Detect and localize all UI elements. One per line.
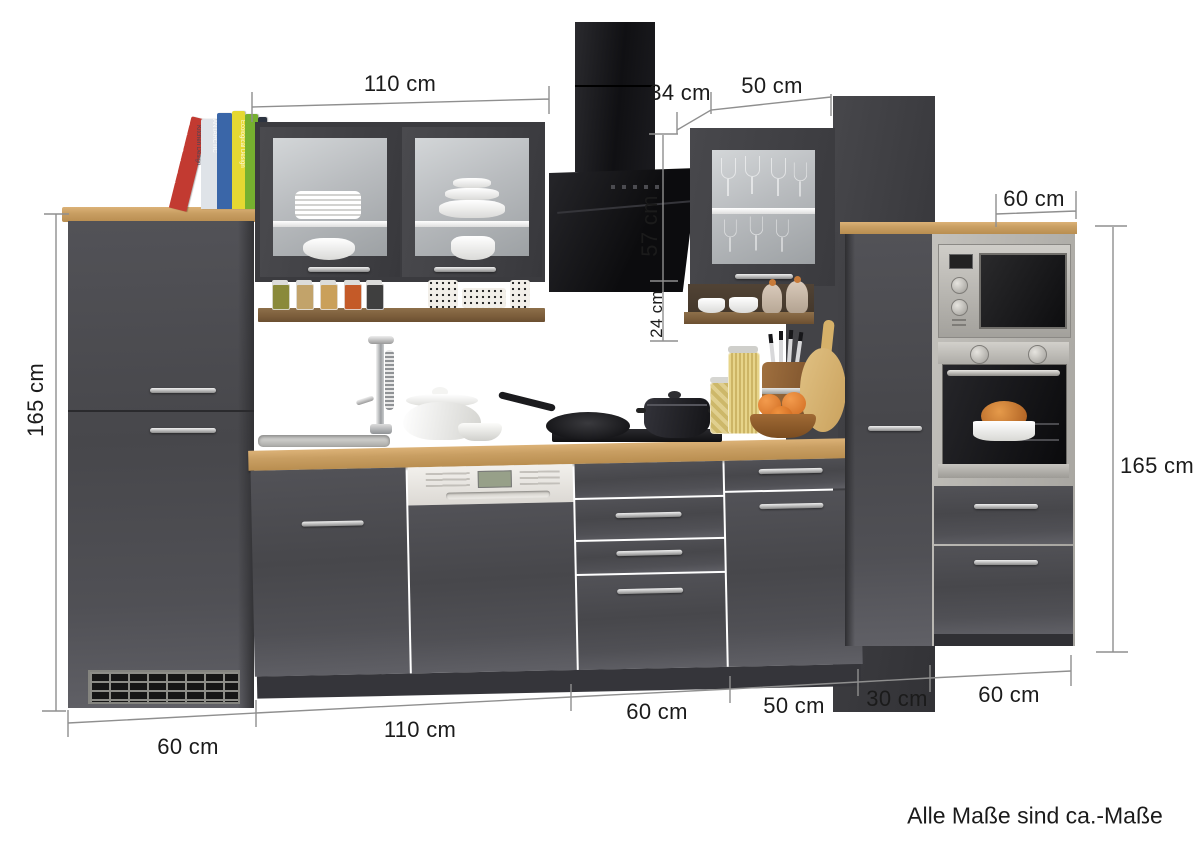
door-handle [759, 503, 823, 509]
tall-cabinet-30 [845, 234, 932, 646]
drawer-handle [616, 512, 682, 518]
faucet-spring-coil [385, 350, 394, 410]
top-drawer [724, 458, 859, 491]
drawer-handle [616, 550, 682, 556]
dishwasher-buttons-right [520, 470, 560, 485]
bowl-stack-bottom [439, 200, 505, 218]
dim-hood-height: 57 cm [637, 195, 663, 256]
tall-cabinet-lower-handle [150, 428, 216, 433]
shelf2-board [684, 312, 814, 324]
tower-plinth [934, 634, 1073, 646]
tower-drawer-2 [934, 546, 1073, 634]
tall-cabinet-left-top-board [62, 207, 258, 222]
dim-bottom-hob-unit: 60 cm [626, 699, 687, 725]
tall-cabinet-upper-handle [150, 388, 216, 393]
tall-30-side-shade [845, 234, 855, 646]
drawer-3 [577, 573, 727, 670]
sink-base-cabinet [251, 468, 410, 677]
hood-chimney [575, 22, 655, 172]
dim-bottom-cabinet-50: 50 cm [763, 693, 824, 719]
microwave-dial [951, 299, 968, 316]
dim-bottom-sink-run: 110 cm [384, 717, 456, 743]
dim-tall-unit-width: 60 cm [1003, 186, 1064, 212]
oven-knob [1028, 345, 1047, 364]
spice-jar [320, 284, 338, 310]
drawer-1 [575, 497, 724, 540]
book-title: ANTARCTIC [211, 119, 217, 134]
wine-glass [723, 219, 737, 258]
pot-handle-left [636, 408, 646, 413]
faucet [350, 336, 410, 436]
jar-lid-knob [769, 279, 776, 286]
tall-cabinet-left [68, 221, 254, 708]
chimney-seam [575, 85, 655, 87]
oven-bottom-trim [938, 464, 1069, 478]
book-title: Kitchen Design [195, 125, 201, 141]
dim-height-right: 165 cm [1120, 453, 1194, 479]
cabinet-shelf [712, 208, 815, 214]
jar-lid-knob [794, 276, 801, 283]
bowl-stack-top [453, 178, 491, 188]
microwave [938, 244, 1071, 338]
faucet-column [376, 342, 384, 434]
dishwasher-handle-groove [446, 491, 550, 500]
cabinet-shelf [273, 221, 387, 227]
hood-control-dots [611, 185, 659, 189]
oven [938, 342, 1069, 478]
white-bowl [729, 297, 758, 313]
wine-glass [749, 216, 763, 257]
hood-body [549, 168, 701, 292]
microwave-buttons [952, 319, 966, 329]
wall-cabinet-door-right [402, 127, 542, 277]
microwave-display [949, 254, 973, 269]
glass-cabinet-panel [712, 150, 815, 264]
book-title: Garden & Outdoor Design [180, 121, 190, 140]
wall-cabinet-glass [255, 122, 545, 282]
drawer-handle [617, 588, 683, 594]
faucet-lever [356, 395, 375, 405]
pot-lid-rim [647, 404, 707, 406]
oven-control-panel [938, 342, 1069, 364]
dishwasher-control-panel [408, 464, 574, 505]
faucet-base [370, 424, 392, 434]
small-white-bowl [458, 423, 502, 441]
sink-cabinet-handle [302, 520, 364, 526]
drawer-handle [974, 504, 1038, 509]
door-glass-panel [415, 138, 529, 256]
tall-cabinet-door-seam [68, 410, 254, 412]
dim-bottom-oven-tower: 60 cm [978, 682, 1039, 708]
tall-30-handle [868, 426, 922, 431]
ceramic-jar [762, 284, 782, 313]
measurements-note: Alle Maße sind ca.-Maße [907, 803, 1163, 830]
dim-hood-clearance: 24 cm [647, 290, 667, 338]
glass-cabinet-handle [735, 274, 793, 279]
spice-shelf-board [258, 308, 545, 322]
spice-jar [296, 284, 314, 310]
bowl [303, 238, 355, 260]
spice-jar [366, 284, 384, 310]
wine-glass [775, 219, 789, 258]
fridge-vent-grille [88, 670, 240, 704]
sink-basin [258, 435, 390, 447]
hob-drawer-unit [574, 461, 726, 670]
tall-units-top-board [840, 222, 1077, 234]
white-bowl [698, 298, 725, 313]
microwave-dial [951, 277, 968, 294]
oven-knob [970, 345, 989, 364]
drawer-2 [576, 539, 725, 574]
wall-cabinet-door-left [260, 127, 400, 277]
cabinet-shelf [415, 221, 529, 227]
dishwasher [408, 464, 577, 673]
wine-glass [744, 156, 760, 202]
hood-groove [557, 200, 693, 214]
frying-pan-handle [498, 391, 556, 412]
bowl-stack-mid [445, 188, 499, 200]
wine-glass [720, 158, 736, 204]
dishwasher-display [478, 470, 512, 488]
black-pot [644, 398, 710, 438]
faucet-spout [368, 336, 394, 344]
bowl [451, 236, 495, 260]
door-glass-panel [273, 138, 387, 256]
wine-glass [793, 162, 807, 203]
drawer-handle [759, 468, 823, 474]
dim-bottom-fridge: 60 cm [157, 734, 218, 760]
hob-unit-blank-front [574, 461, 723, 498]
dishwasher-furniture-door [408, 502, 576, 673]
knife [779, 331, 783, 366]
kitchen-product-image: Garden & Outdoor Design Kitchen Design A… [0, 0, 1200, 854]
spice-jar [272, 284, 290, 310]
spice-jar [344, 284, 362, 310]
glass-cabinet-50 [690, 128, 835, 286]
patterned-canister [428, 280, 458, 308]
wall-cabinet-right-handle [434, 267, 496, 272]
wine-glass [770, 158, 786, 204]
plate-stack [295, 191, 361, 219]
wall-cabinet-left-handle [308, 267, 370, 272]
roasting-dish [973, 421, 1035, 441]
dim-wall-cabinet-width: 110 cm [364, 71, 436, 97]
book-spine: ANTARCTIC [217, 113, 232, 209]
lower-door [725, 490, 863, 667]
frying-pan [546, 412, 630, 440]
dishwasher-buttons-left [426, 472, 470, 487]
ceramic-jar [786, 281, 808, 313]
jar-lid [728, 346, 758, 353]
base-run [248, 438, 865, 703]
book-title: Ecological Design [239, 120, 245, 133]
tower-drawer-1 [934, 486, 1073, 544]
drawer-handle [974, 560, 1038, 565]
oven-handle [947, 370, 1060, 376]
dim-bottom-narrow-unit: 30 cm [866, 686, 927, 712]
oven-door [942, 364, 1067, 466]
appliance-tower [932, 234, 1075, 646]
cabinet-50-unit [724, 458, 862, 667]
dim-glass-cabinet-width: 50 cm [741, 73, 802, 99]
patterned-canister [510, 280, 530, 308]
dim-hood-chimney-depth: 34 cm [649, 80, 710, 106]
microwave-window [979, 253, 1067, 329]
patterned-box [462, 288, 506, 308]
dim-height-left: 165 cm [23, 363, 49, 437]
